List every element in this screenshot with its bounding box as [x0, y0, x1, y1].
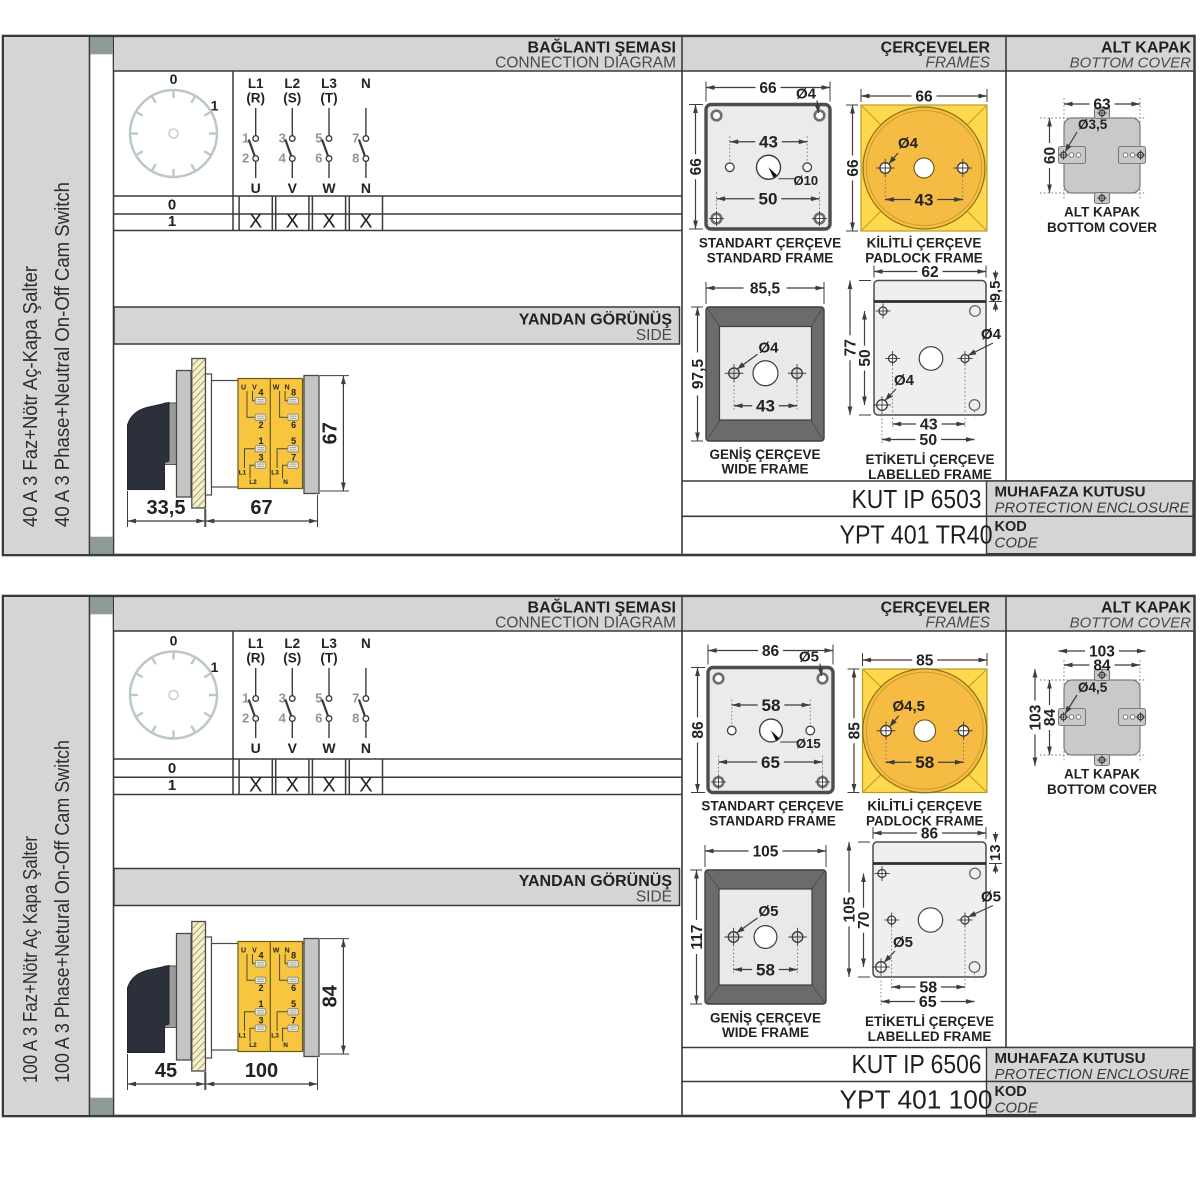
svg-text:1: 1	[258, 999, 263, 1009]
svg-text:W: W	[273, 948, 280, 955]
svg-text:L1: L1	[248, 76, 264, 91]
svg-text:L1: L1	[239, 1033, 247, 1040]
svg-text:Ø5: Ø5	[759, 903, 779, 920]
svg-text:MUHAFAZA KUTUSU: MUHAFAZA KUTUSU	[995, 485, 1146, 501]
svg-text:1: 1	[168, 777, 176, 794]
svg-text:L3: L3	[321, 636, 337, 651]
svg-text:X: X	[322, 775, 335, 797]
svg-text:65: 65	[761, 753, 780, 772]
svg-text:100 A 3 Phase+Netural On-Off C: 100 A 3 Phase+Netural On-Off Cam Switch	[52, 740, 74, 1083]
svg-text:Ø5: Ø5	[893, 934, 913, 951]
svg-text:SIDE: SIDE	[636, 889, 672, 906]
svg-text:N: N	[361, 180, 371, 196]
svg-text:L2: L2	[284, 636, 300, 651]
svg-text:4: 4	[258, 951, 263, 961]
svg-text:50: 50	[919, 432, 937, 449]
svg-text:5: 5	[315, 131, 322, 146]
svg-text:84: 84	[1093, 657, 1111, 674]
svg-text:58: 58	[756, 960, 775, 979]
svg-text:65: 65	[919, 994, 937, 1011]
svg-text:Ø4: Ø4	[894, 372, 915, 389]
svg-text:7: 7	[291, 453, 296, 463]
svg-text:X: X	[322, 211, 335, 233]
svg-text:5: 5	[291, 436, 296, 446]
svg-text:Ø4: Ø4	[796, 86, 817, 103]
svg-text:0: 0	[168, 197, 176, 214]
svg-text:1: 1	[211, 98, 219, 114]
svg-text:BOTTOM COVER: BOTTOM COVER	[1047, 782, 1157, 797]
svg-text:U: U	[251, 180, 261, 196]
svg-text:(S): (S)	[283, 651, 301, 666]
svg-text:117: 117	[689, 924, 706, 949]
svg-text:6: 6	[315, 151, 322, 166]
svg-text:X: X	[286, 775, 299, 797]
svg-text:YPT 401 TR40: YPT 401 TR40	[840, 519, 993, 549]
svg-text:N: N	[283, 1042, 288, 1049]
svg-text:U: U	[251, 740, 261, 756]
svg-text:WIDE FRAME: WIDE FRAME	[722, 1025, 809, 1040]
svg-text:43: 43	[756, 397, 775, 416]
svg-text:Ø5: Ø5	[799, 649, 819, 666]
svg-text:N: N	[285, 385, 290, 392]
svg-text:85: 85	[846, 722, 863, 740]
svg-text:ALT KAPAK: ALT KAPAK	[1064, 767, 1140, 782]
svg-text:L3: L3	[321, 76, 337, 91]
svg-text:KUT IP 6506: KUT IP 6506	[852, 1049, 982, 1079]
svg-text:N: N	[285, 948, 290, 955]
svg-text:X: X	[359, 211, 372, 233]
svg-text:84: 84	[1042, 709, 1059, 727]
svg-text:85: 85	[916, 652, 934, 669]
svg-text:STANDART ÇERÇEVE: STANDART ÇERÇEVE	[701, 799, 843, 814]
svg-text:YANDAN GÖRÜNÜŞ: YANDAN GÖRÜNÜŞ	[519, 310, 673, 329]
svg-text:1: 1	[258, 436, 263, 446]
svg-text:4: 4	[279, 711, 287, 726]
svg-text:ALT KAPAK: ALT KAPAK	[1064, 205, 1140, 220]
svg-text:YANDAN GÖRÜNÜŞ: YANDAN GÖRÜNÜŞ	[519, 871, 673, 890]
svg-text:CODE: CODE	[995, 1100, 1039, 1117]
svg-text:6: 6	[291, 983, 296, 993]
svg-text:62: 62	[921, 264, 938, 281]
svg-text:50: 50	[857, 349, 874, 366]
svg-text:Ø3,5: Ø3,5	[1078, 117, 1108, 132]
svg-text:ETİKETLİ ÇERÇEVE: ETİKETLİ ÇERÇEVE	[865, 1014, 994, 1029]
svg-text:KİLİTLİ ÇERÇEVE: KİLİTLİ ÇERÇEVE	[867, 799, 982, 814]
svg-text:FRAMES: FRAMES	[925, 615, 990, 632]
svg-text:70: 70	[856, 912, 873, 929]
svg-text:33,5: 33,5	[147, 497, 186, 519]
svg-text:N: N	[361, 636, 371, 651]
svg-text:GENİŞ ÇERÇEVE: GENİŞ ÇERÇEVE	[709, 447, 820, 462]
svg-text:STANDARD FRAME: STANDARD FRAME	[707, 251, 834, 266]
svg-text:6: 6	[291, 420, 296, 430]
svg-text:86: 86	[690, 721, 707, 739]
svg-text:STANDARD FRAME: STANDARD FRAME	[709, 814, 836, 829]
svg-text:8: 8	[291, 951, 296, 961]
svg-text:L2: L2	[284, 76, 300, 91]
svg-text:ETİKETLİ ÇERÇEVE: ETİKETLİ ÇERÇEVE	[865, 452, 994, 467]
svg-text:Ø15: Ø15	[796, 736, 821, 751]
svg-text:84: 84	[320, 984, 342, 1007]
svg-text:0: 0	[170, 633, 178, 649]
svg-text:8: 8	[352, 711, 359, 726]
svg-text:X: X	[359, 775, 372, 797]
svg-text:Ø4: Ø4	[898, 135, 919, 152]
svg-text:L2: L2	[249, 479, 257, 486]
svg-text:U: U	[241, 948, 246, 955]
svg-text:60: 60	[1042, 147, 1059, 164]
svg-text:3: 3	[258, 1016, 263, 1026]
svg-text:86: 86	[762, 643, 780, 660]
svg-text:KİLİTLİ ÇERÇEVE: KİLİTLİ ÇERÇEVE	[867, 236, 982, 251]
svg-text:BOTTOM COVER: BOTTOM COVER	[1070, 55, 1192, 72]
svg-text:1: 1	[211, 659, 219, 675]
svg-text:YPT 401 100: YPT 401 100	[840, 1085, 993, 1115]
svg-text:W: W	[322, 180, 336, 196]
svg-text:LABELLED FRAME: LABELLED FRAME	[868, 1029, 992, 1044]
svg-text:V: V	[288, 180, 298, 196]
svg-text:CODE: CODE	[995, 534, 1039, 551]
svg-text:13: 13	[987, 844, 1004, 861]
svg-text:3: 3	[279, 131, 286, 146]
svg-text:W: W	[273, 385, 280, 392]
svg-text:W: W	[322, 740, 336, 756]
svg-text:MUHAFAZA KUTUSU: MUHAFAZA KUTUSU	[995, 1051, 1146, 1067]
svg-text:CONNECTION DIAGRAM: CONNECTION DIAGRAM	[495, 615, 676, 632]
svg-text:L2: L2	[249, 1042, 257, 1049]
svg-text:V: V	[252, 948, 257, 955]
svg-text:KOD: KOD	[995, 519, 1027, 535]
svg-text:66: 66	[688, 158, 705, 176]
svg-text:(R): (R)	[246, 651, 265, 666]
svg-text:5: 5	[315, 691, 322, 706]
svg-text:LABELLED FRAME: LABELLED FRAME	[868, 467, 992, 482]
svg-text:Ø4,5: Ø4,5	[1078, 680, 1108, 695]
svg-text:2: 2	[258, 983, 263, 993]
svg-text:Ø4: Ø4	[981, 326, 1002, 343]
svg-text:X: X	[249, 211, 262, 233]
svg-text:3: 3	[258, 453, 263, 463]
svg-text:50: 50	[759, 190, 778, 209]
svg-text:58: 58	[915, 753, 934, 772]
svg-text:PROTECTION ENCLOSURE: PROTECTION ENCLOSURE	[995, 499, 1191, 516]
svg-text:8: 8	[352, 151, 359, 166]
svg-text:85,5: 85,5	[750, 280, 781, 297]
svg-text:PROTECTION ENCLOSURE: PROTECTION ENCLOSURE	[995, 1066, 1191, 1083]
svg-text:Ø10: Ø10	[794, 173, 819, 188]
svg-text:FRAMES: FRAMES	[925, 55, 990, 72]
svg-text:U: U	[241, 385, 246, 392]
svg-text:L3: L3	[271, 470, 279, 477]
svg-text:4: 4	[279, 151, 287, 166]
svg-text:V: V	[252, 385, 257, 392]
svg-text:58: 58	[762, 696, 781, 715]
svg-text:2: 2	[242, 711, 249, 726]
svg-text:7: 7	[352, 131, 359, 146]
svg-text:43: 43	[920, 416, 938, 433]
svg-text:6: 6	[315, 711, 322, 726]
svg-text:N: N	[361, 76, 371, 91]
svg-text:1: 1	[242, 131, 249, 146]
svg-text:L1: L1	[239, 470, 247, 477]
svg-text:1: 1	[242, 691, 249, 706]
svg-text:4: 4	[258, 388, 263, 398]
svg-text:N: N	[361, 740, 371, 756]
svg-text:BOTTOM COVER: BOTTOM COVER	[1070, 615, 1192, 632]
svg-text:67: 67	[250, 497, 272, 519]
svg-text:Ø5: Ø5	[981, 889, 1001, 906]
svg-text:(T): (T)	[320, 91, 337, 106]
svg-text:7: 7	[352, 691, 359, 706]
svg-text:43: 43	[759, 133, 778, 152]
svg-text:BOTTOM COVER: BOTTOM COVER	[1047, 220, 1157, 235]
svg-text:2: 2	[242, 151, 249, 166]
svg-text:X: X	[286, 211, 299, 233]
svg-text:43: 43	[915, 190, 934, 209]
svg-text:7: 7	[291, 1016, 296, 1026]
svg-text:67: 67	[320, 422, 342, 444]
svg-text:66: 66	[845, 159, 862, 177]
svg-text:X: X	[249, 775, 262, 797]
svg-text:L3: L3	[271, 1033, 279, 1040]
svg-text:105: 105	[753, 843, 779, 860]
svg-text:GENİŞ ÇERÇEVE: GENİŞ ÇERÇEVE	[710, 1011, 821, 1026]
svg-text:40 A 3 Faz+Nötr Aç-Kapa Şalter: 40 A 3 Faz+Nötr Aç-Kapa Şalter	[20, 266, 42, 527]
svg-text:L1: L1	[248, 636, 264, 651]
svg-text:5: 5	[291, 999, 296, 1009]
svg-text:SIDE: SIDE	[636, 327, 672, 344]
svg-text:(T): (T)	[320, 651, 337, 666]
svg-text:66: 66	[915, 88, 933, 105]
svg-text:Ø4: Ø4	[759, 339, 780, 356]
svg-text:1: 1	[168, 213, 176, 230]
svg-text:45: 45	[155, 1060, 177, 1082]
svg-text:KOD: KOD	[995, 1084, 1027, 1100]
svg-text:N: N	[283, 479, 288, 486]
svg-text:100: 100	[245, 1060, 278, 1082]
svg-text:9,5: 9,5	[987, 281, 1004, 302]
svg-text:V: V	[288, 740, 298, 756]
svg-text:63: 63	[1093, 96, 1111, 113]
svg-text:66: 66	[759, 80, 777, 97]
svg-text:86: 86	[921, 825, 939, 842]
svg-text:97,5: 97,5	[690, 359, 707, 390]
svg-text:0: 0	[168, 760, 176, 777]
svg-text:KUT IP 6503: KUT IP 6503	[852, 484, 982, 514]
svg-text:(S): (S)	[283, 91, 301, 106]
svg-text:WIDE FRAME: WIDE FRAME	[722, 462, 809, 477]
svg-text:40 A 3 Phase+Neutral On-Off Ca: 40 A 3 Phase+Neutral On-Off Cam Switch	[52, 182, 74, 527]
svg-text:STANDART ÇERÇEVE: STANDART ÇERÇEVE	[699, 236, 841, 251]
svg-text:3: 3	[279, 691, 286, 706]
svg-text:CONNECTION DIAGRAM: CONNECTION DIAGRAM	[495, 55, 676, 72]
svg-text:8: 8	[291, 388, 296, 398]
svg-text:Ø4,5: Ø4,5	[892, 698, 925, 715]
svg-text:0: 0	[170, 71, 178, 87]
svg-text:100 A 3 Faz+Nötr Aç Kapa Şalte: 100 A 3 Faz+Nötr Aç Kapa Şalter	[20, 836, 42, 1083]
svg-text:2: 2	[258, 420, 263, 430]
svg-text:(R): (R)	[246, 91, 265, 106]
